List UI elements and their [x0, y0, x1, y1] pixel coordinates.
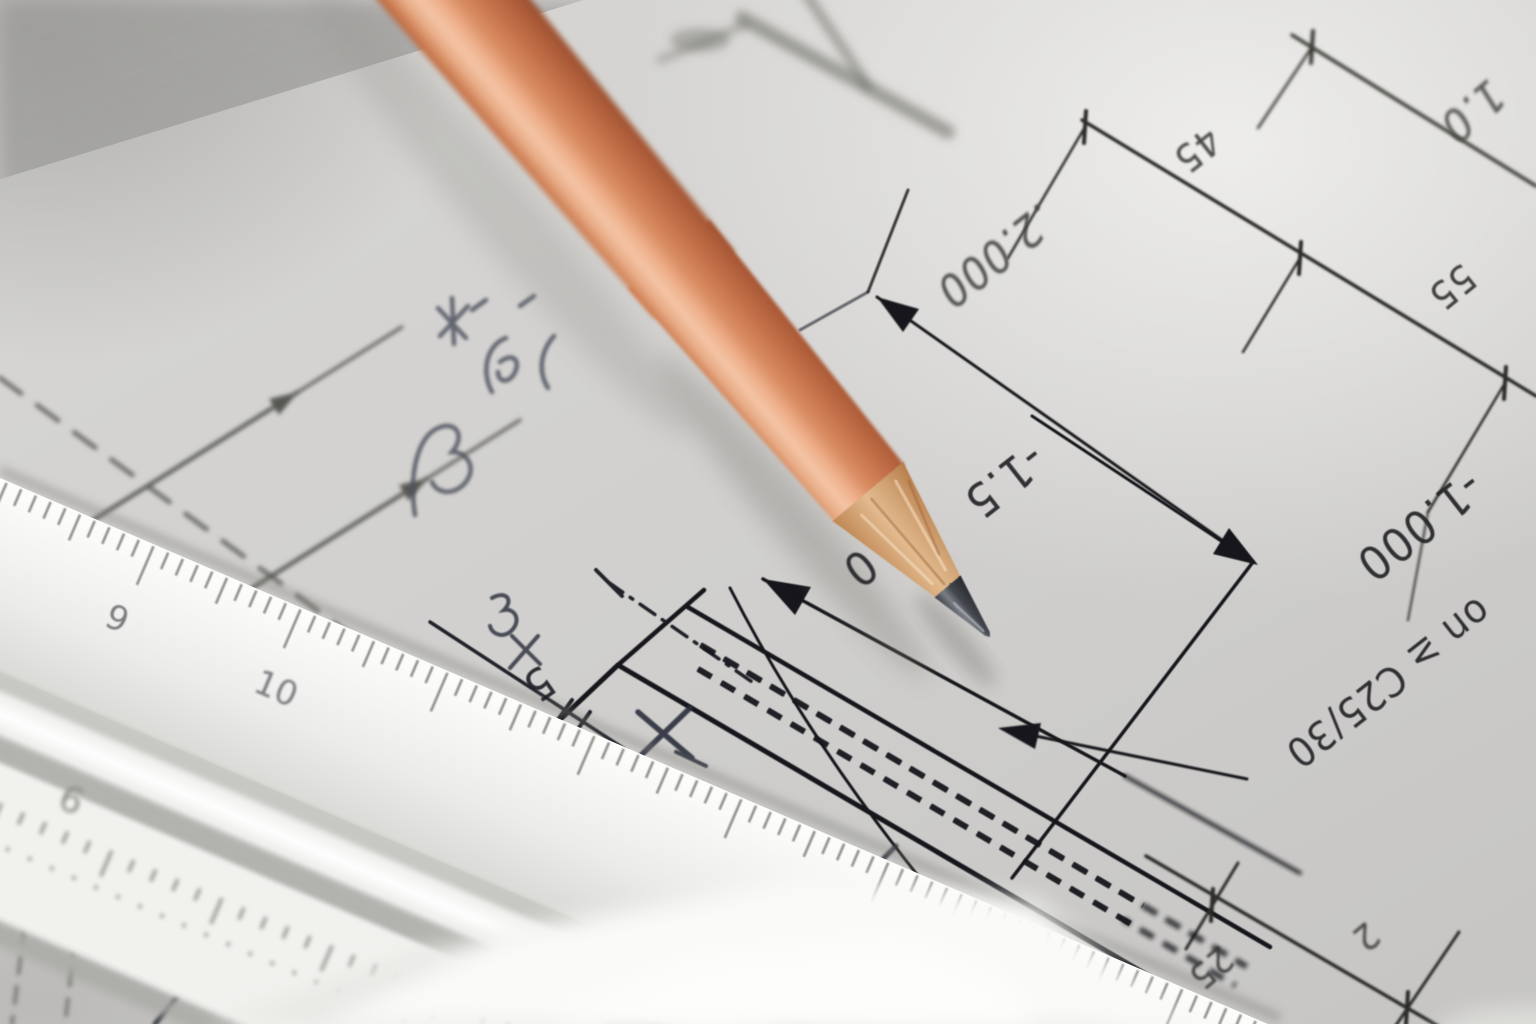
scribble-ticks: [472, 296, 534, 310]
dimension-line-45-55: [1008, 111, 1536, 620]
blurred-drawing-smudges: [660, 0, 948, 132]
scribble-6: [486, 338, 517, 392]
scribble-paren: [542, 336, 554, 388]
handwritten-scribbles: [413, 296, 554, 515]
photo-scene: 1.0 45 55 .2.000 -1.000 -1.5 0 on ≥ C25/…: [0, 0, 1536, 1024]
level-marker-arrow: [1012, 416, 1258, 878]
pencil-shadow: [277, 0, 1004, 754]
scribble-star: [438, 298, 468, 344]
drawing-overlay: [0, 0, 1536, 1024]
